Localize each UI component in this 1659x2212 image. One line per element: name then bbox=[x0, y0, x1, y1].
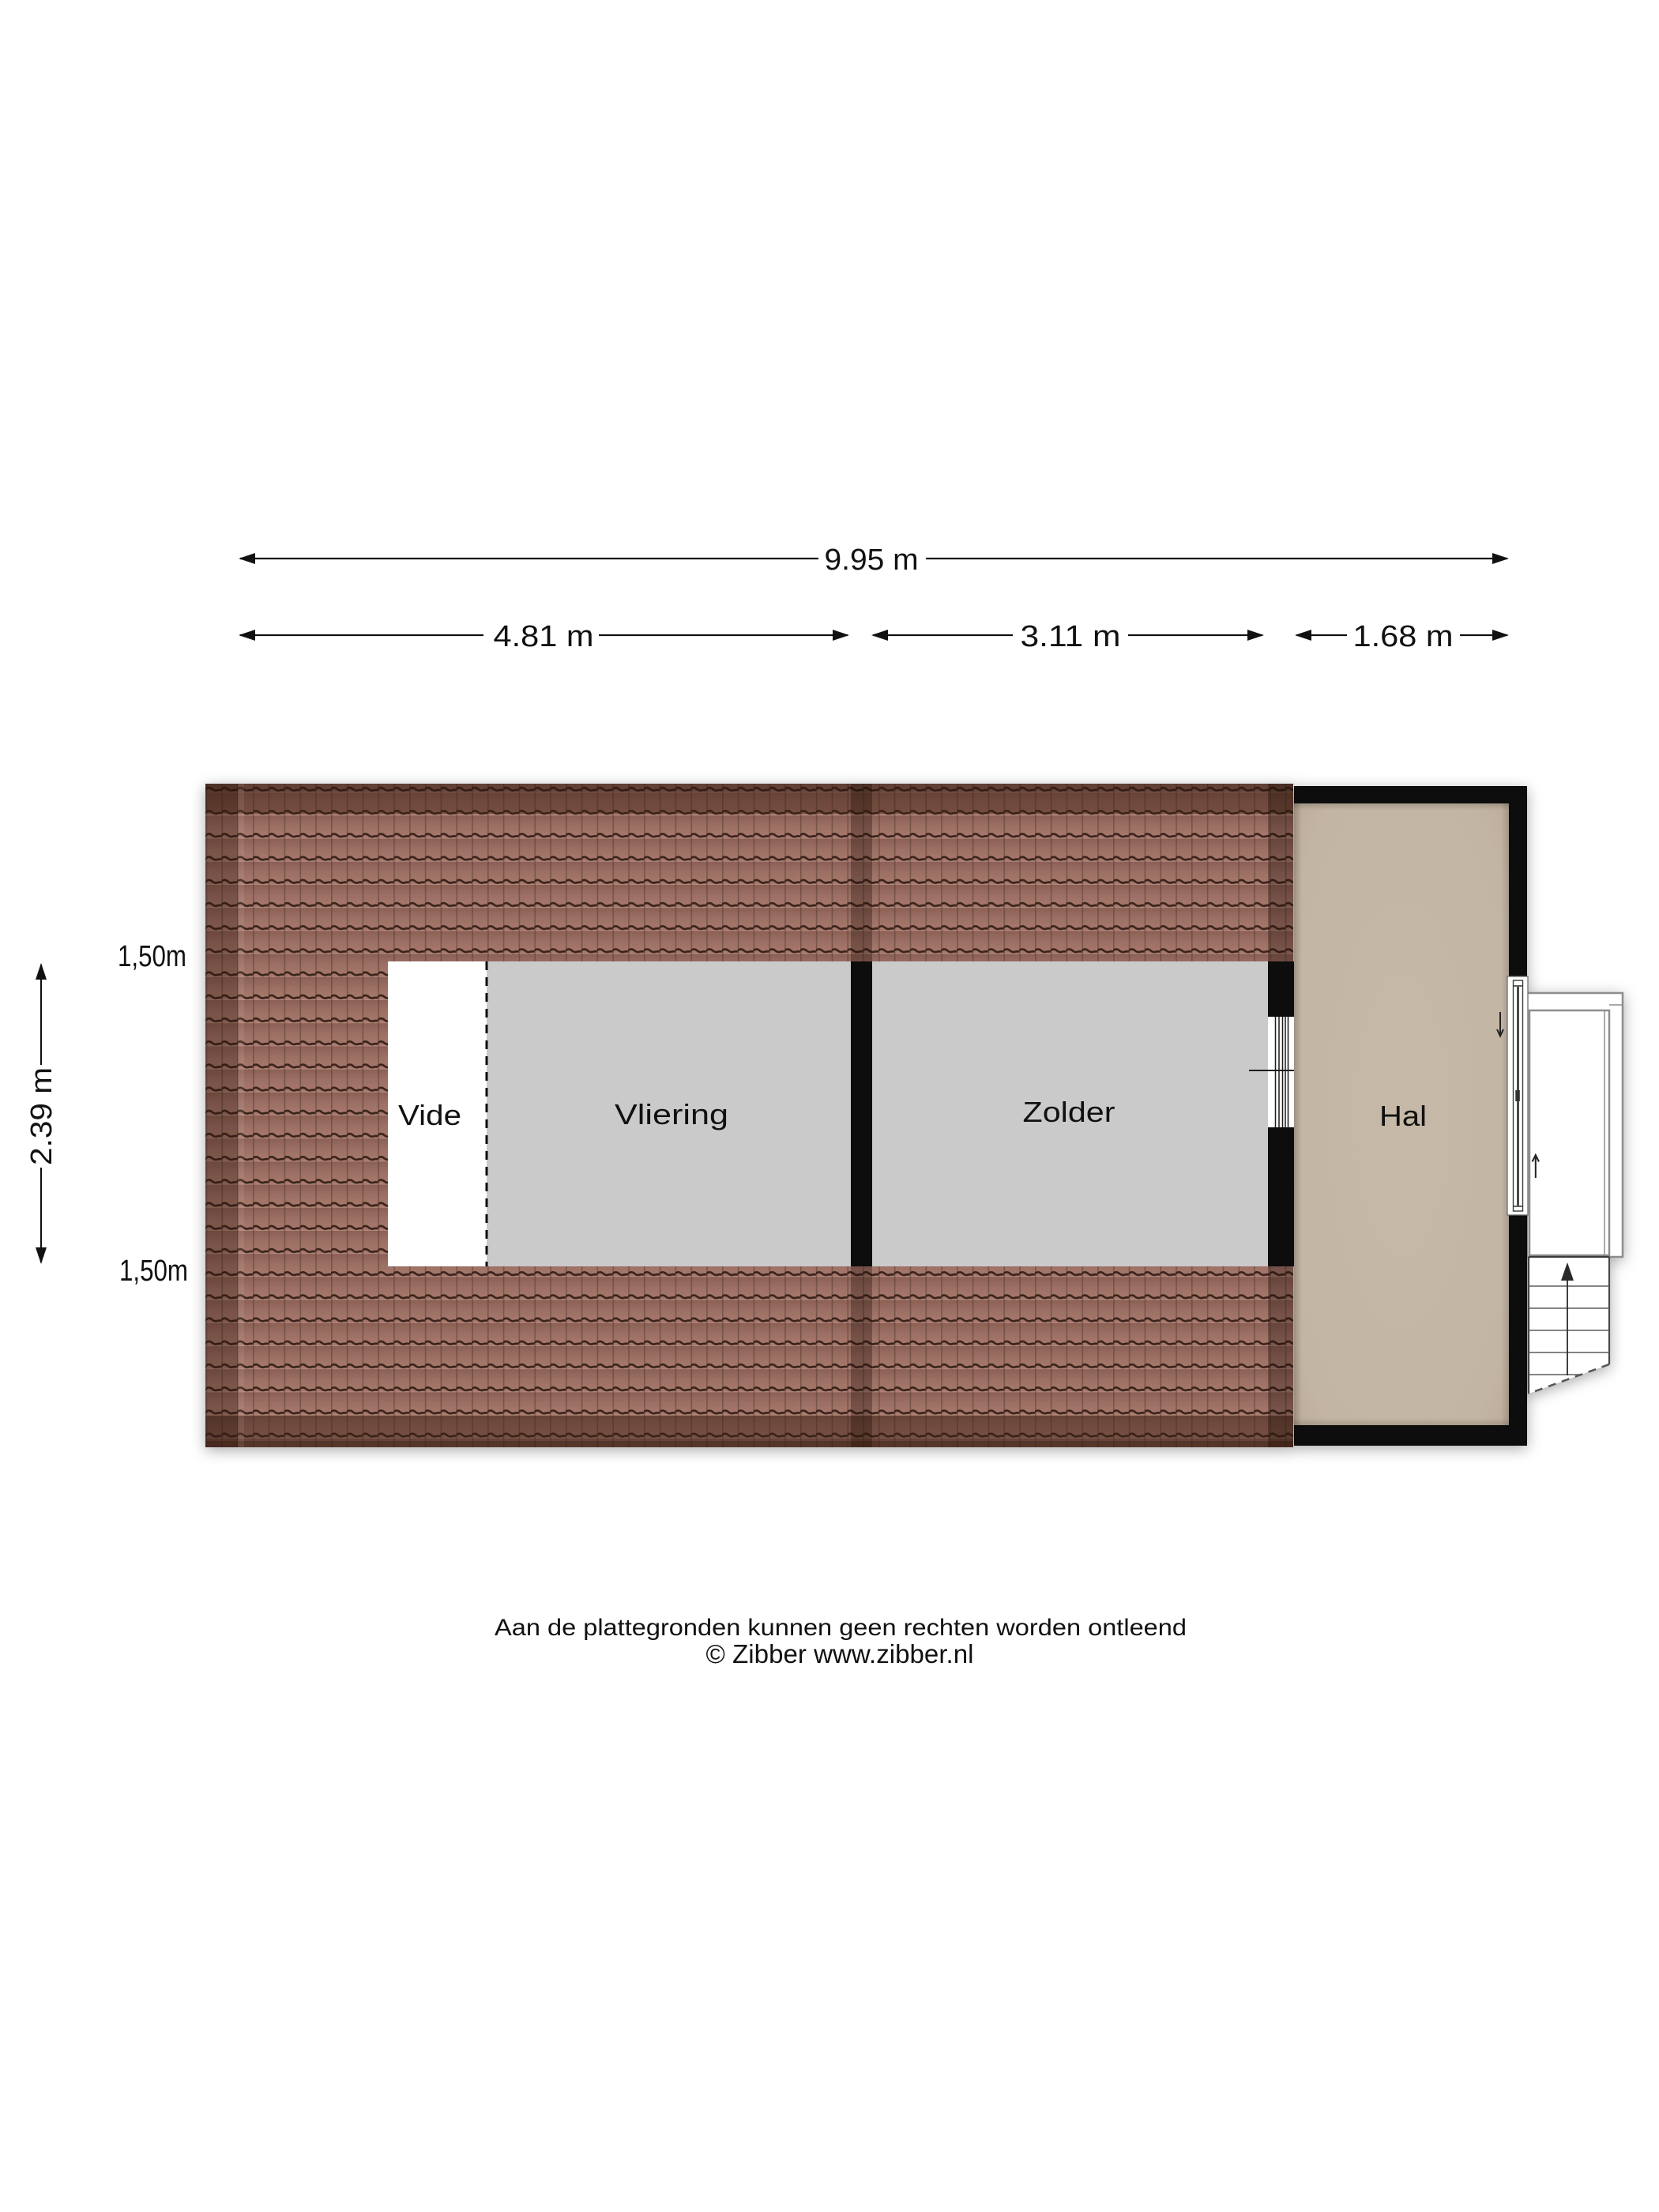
svg-text:2.39 m: 2.39 m bbox=[25, 1067, 58, 1165]
svg-text:4.81 m: 4.81 m bbox=[494, 620, 594, 653]
svg-text:3.11 m: 3.11 m bbox=[1021, 620, 1121, 653]
svg-text:Zolder: Zolder bbox=[1023, 1096, 1115, 1128]
svg-text:Hal: Hal bbox=[1379, 1100, 1427, 1132]
svg-text:1,50m: 1,50m bbox=[119, 1255, 188, 1288]
svg-text:Vide: Vide bbox=[398, 1099, 461, 1131]
svg-text:Vliering: Vliering bbox=[615, 1098, 728, 1130]
svg-text:1,50m: 1,50m bbox=[118, 940, 186, 973]
svg-text:© Zibber www.zibber.nl: © Zibber www.zibber.nl bbox=[706, 1639, 974, 1668]
svg-text:Aan de plattegronden kunnen ge: Aan de plattegronden kunnen geen rechten… bbox=[495, 1615, 1187, 1641]
svg-text:9.95 m: 9.95 m bbox=[825, 544, 919, 577]
svg-text:1.68 m: 1.68 m bbox=[1353, 620, 1454, 653]
